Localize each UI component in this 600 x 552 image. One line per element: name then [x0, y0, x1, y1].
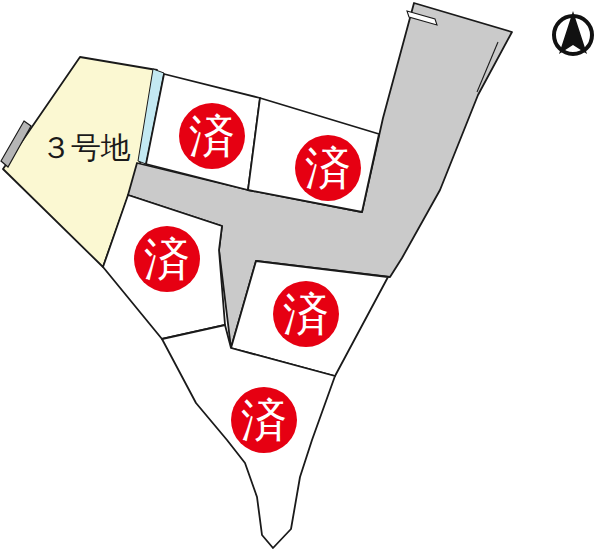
sold-badge-1: 済	[179, 103, 245, 169]
sold-badge-4: 済	[273, 281, 339, 347]
sold-badge-label: 済	[189, 109, 235, 163]
sold-badge-label: 済	[305, 141, 351, 195]
sold-badge-3: 済	[134, 226, 200, 292]
sold-badge-5: 済	[231, 387, 297, 453]
north-arrow-icon	[554, 11, 592, 54]
available-lot-label: ３号地	[41, 130, 131, 165]
sold-badge-label: 済	[283, 287, 329, 341]
sold-badge-label: 済	[241, 393, 287, 447]
sold-badge-2: 済	[295, 135, 361, 201]
site-plan-svg: ３号地 済 済 済 済 済	[0, 0, 600, 552]
site-plan-map: ３号地 済 済 済 済 済	[0, 0, 600, 552]
sold-badge-label: 済	[144, 232, 190, 286]
